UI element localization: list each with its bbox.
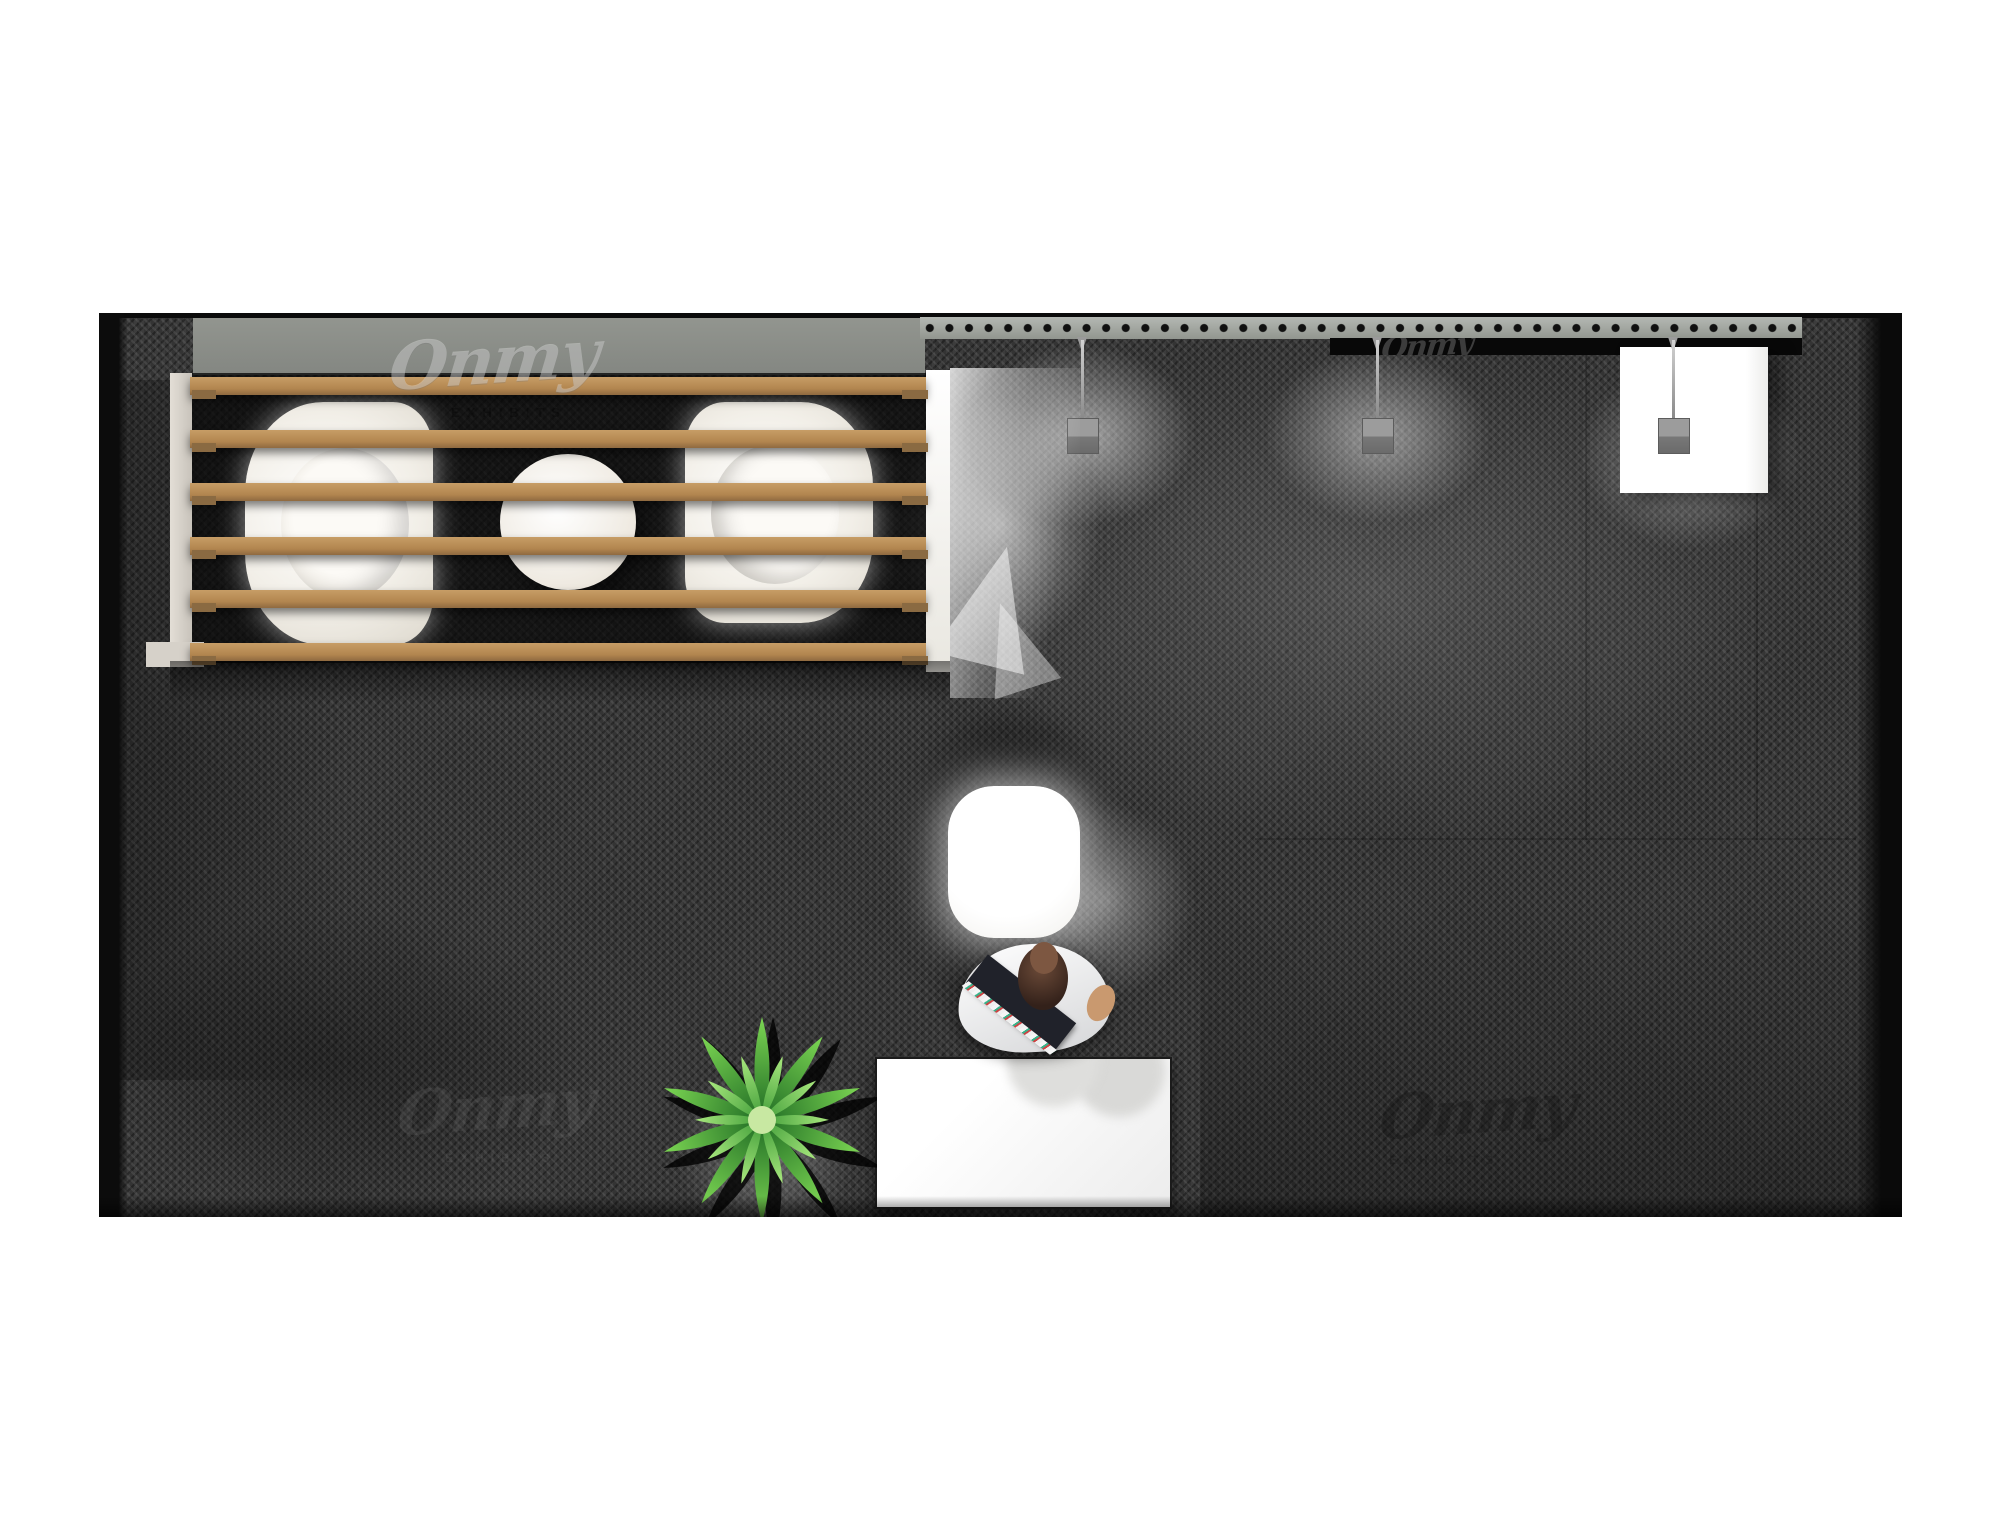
booth-floor-carpet: Onmy bbox=[99, 313, 1902, 1217]
pergola-slat-4 bbox=[190, 537, 926, 555]
back-wall-gray bbox=[193, 318, 925, 375]
round-coffee-table bbox=[500, 454, 636, 590]
pergola-slat-5-stub-left bbox=[192, 603, 216, 612]
watermark-bottom-right: Onmy bbox=[1376, 1068, 1578, 1154]
pergola-slat-3-stub-right bbox=[902, 496, 928, 505]
watermark-bottom-left: Onmy bbox=[394, 1064, 596, 1150]
lamp3-head bbox=[1658, 418, 1690, 454]
booth-edge-right bbox=[1856, 313, 1902, 1217]
pergola-slat-1-stub-left bbox=[192, 390, 216, 399]
render-canvas: Onmy bbox=[0, 0, 2000, 1520]
pergola-slat-3 bbox=[190, 483, 926, 501]
carpet-seam-vertical-1 bbox=[1585, 354, 1587, 840]
reception-chair-white bbox=[948, 786, 1080, 938]
shadow-vignette-bottom-right bbox=[1200, 900, 1902, 1217]
carpet-seam-horizontal bbox=[1255, 838, 1856, 840]
pergola-slat-5-stub-right bbox=[902, 603, 928, 612]
pergola-slat-2 bbox=[190, 430, 926, 448]
watermark-bottom-right-subtext: EXHIBITS bbox=[1389, 1153, 1500, 1167]
pergola-rail-right bbox=[926, 370, 950, 672]
hanging-white-panel bbox=[1620, 347, 1768, 493]
pergola-rail-left bbox=[170, 373, 192, 667]
lamp3-cord bbox=[1672, 340, 1675, 418]
plant-center bbox=[748, 1106, 776, 1134]
reception-counter bbox=[875, 1057, 1172, 1209]
truss-bar-perforated bbox=[920, 317, 1802, 339]
potted-palm-plant bbox=[647, 1005, 877, 1217]
watermark-black-strip: Onmy bbox=[1380, 338, 1474, 355]
lamp2-head bbox=[1362, 418, 1394, 454]
person-hair-knot bbox=[1030, 942, 1058, 974]
lamp1-cord bbox=[1081, 340, 1084, 418]
pergola-slat-4-stub-left bbox=[192, 550, 216, 559]
pergola-slat-3-stub-left bbox=[192, 496, 216, 505]
pergola-slat-6-stub-right bbox=[902, 656, 928, 665]
pergola-slat-2-stub-right bbox=[902, 443, 928, 452]
armchair-left-cushion bbox=[281, 448, 409, 600]
pergola-slat-2-stub-left bbox=[192, 443, 216, 452]
pergola-slat-1 bbox=[190, 377, 926, 395]
pergola-slat-6 bbox=[190, 643, 926, 661]
pergola-bottom-shadow bbox=[170, 661, 950, 703]
pergola-slat-1-stub-right bbox=[902, 390, 928, 399]
pergola-slat-4-stub-right bbox=[902, 550, 928, 559]
pergola-slat-6-stub-left bbox=[192, 656, 216, 665]
watermark-bottom-left-subtext: EXHIBITS bbox=[445, 1151, 556, 1165]
armchair-right-cushion bbox=[711, 444, 839, 584]
booth-edge-left bbox=[99, 313, 127, 1217]
lamp2-cord bbox=[1376, 340, 1379, 418]
pergola-slat-5 bbox=[190, 590, 926, 608]
